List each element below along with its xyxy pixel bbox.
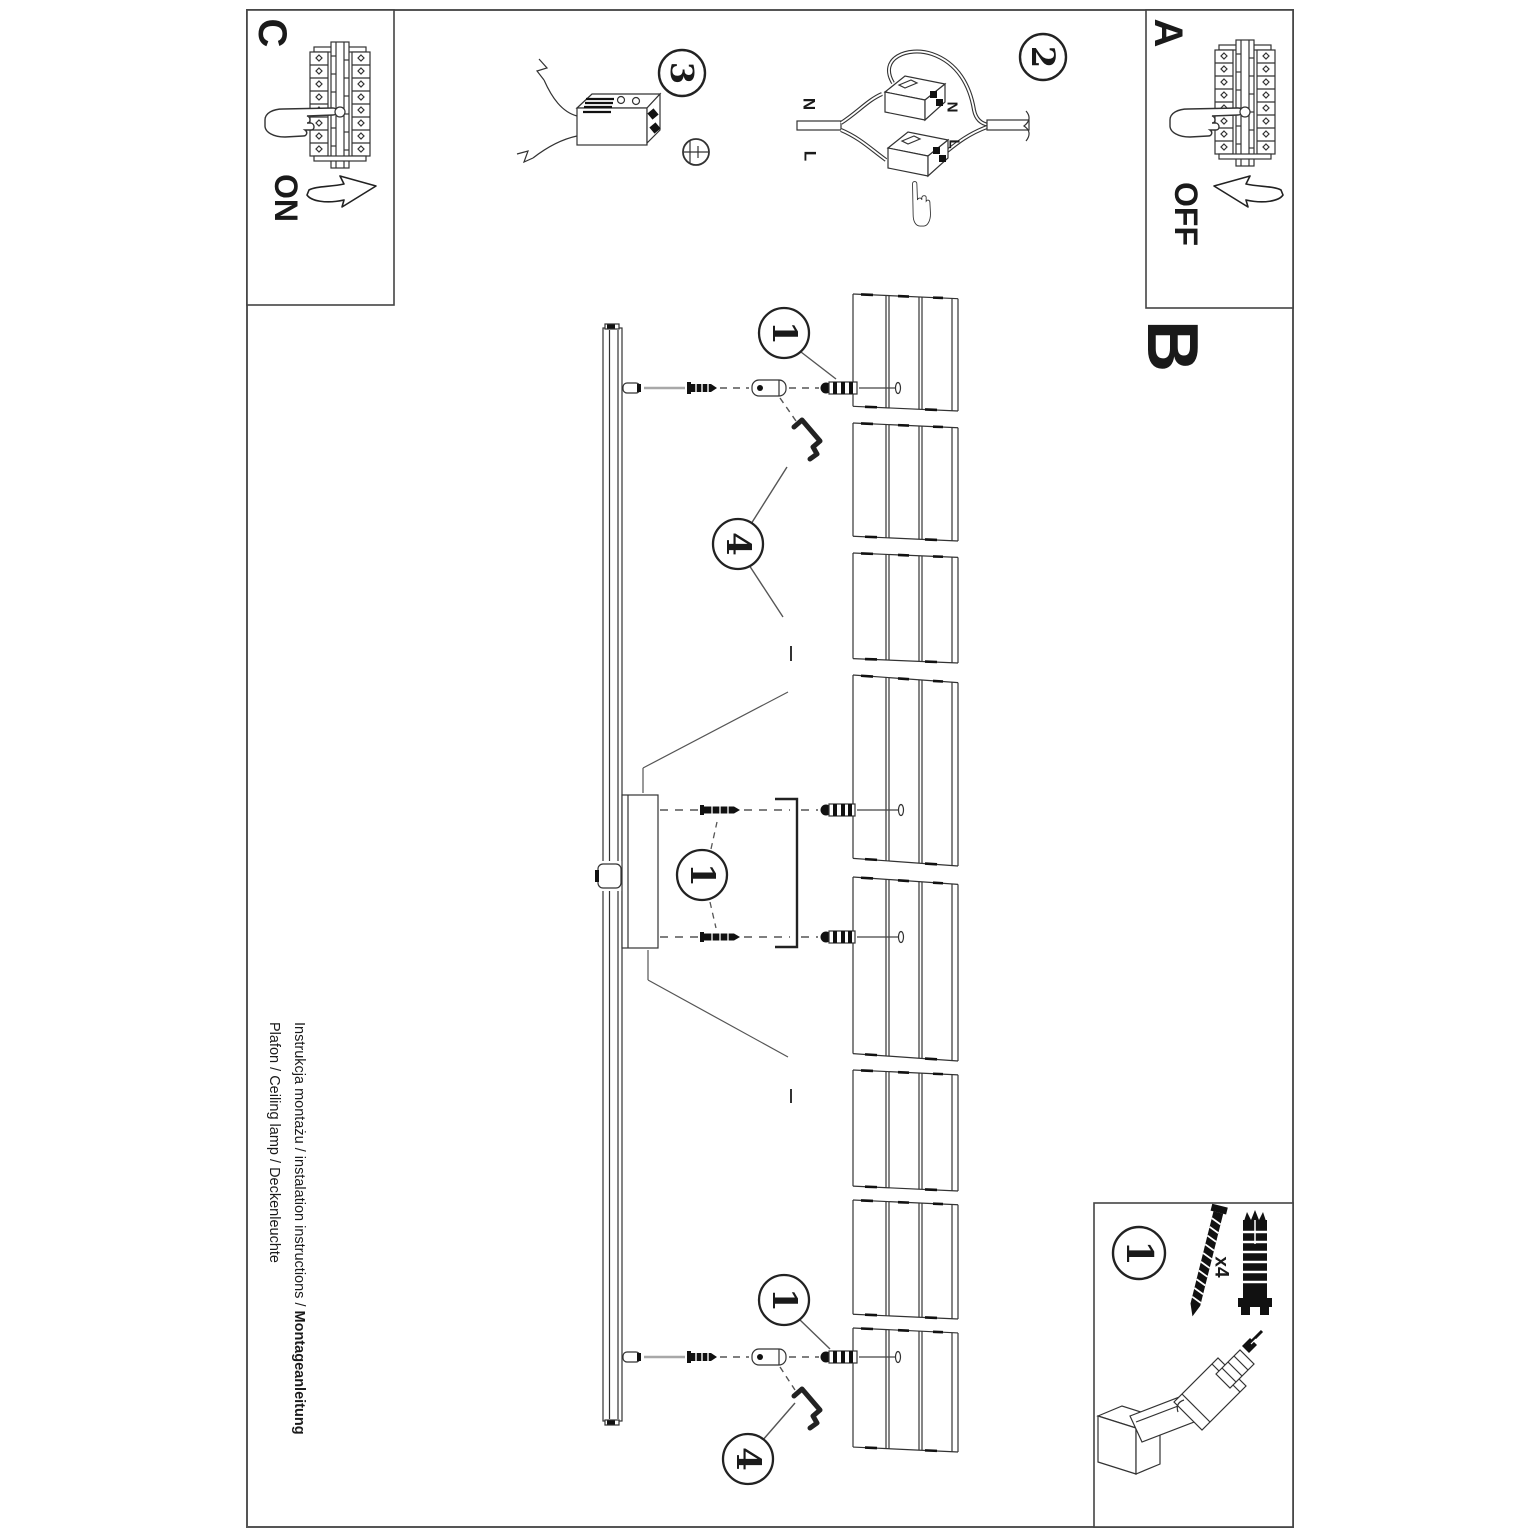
panel-power-on: C ON — [247, 10, 394, 305]
wire-n-label: N — [944, 102, 961, 113]
fusebox-icon — [310, 42, 370, 168]
panel-power-off: A OFF — [1146, 10, 1293, 308]
cable-icon — [797, 121, 841, 130]
earth-ground-icon — [683, 139, 709, 165]
cable-icon — [987, 120, 1029, 130]
section-b-label: B — [1132, 320, 1212, 372]
callout-number: 1 — [764, 1288, 804, 1312]
instruction-sheet-scan: C ON A OFF B 3 — [0, 0, 1540, 1540]
panel-c-label: C — [250, 19, 294, 48]
parts-box: 1 x4 — [1094, 1203, 1293, 1527]
fusebox-icon — [1215, 40, 1275, 166]
step2-number: 2 — [1024, 46, 1062, 68]
quantity-label: x4 — [1211, 1256, 1232, 1278]
wire-l-label: L — [801, 151, 820, 161]
panel-a-label: A — [1146, 19, 1190, 48]
footer-line2: Plafon / Ceiling lamp / Deckenleuchte — [266, 1022, 282, 1263]
off-label: OFF — [1168, 182, 1204, 246]
step3-number: 3 — [663, 62, 701, 84]
instruction-sheet: C ON A OFF B 3 — [0, 0, 1540, 1540]
wall-plug-icon — [1238, 1210, 1272, 1315]
breaker-knob-icon — [335, 107, 345, 117]
breaker-knob-icon — [1240, 107, 1250, 117]
callout-number: 1 — [682, 863, 722, 887]
wire-n-label: N — [800, 98, 819, 110]
on-label: ON — [268, 174, 304, 222]
callout-number: 4 — [728, 1447, 768, 1471]
callout-number: 1 — [764, 321, 804, 345]
parts-step-number: 1 — [1118, 1240, 1160, 1265]
callout-number: 4 — [718, 532, 758, 556]
bar-connector-icon — [598, 864, 621, 888]
footer-line1: Instrukcja montażu / instalation instruc… — [291, 1022, 307, 1435]
wire-l-label: L — [946, 139, 963, 148]
